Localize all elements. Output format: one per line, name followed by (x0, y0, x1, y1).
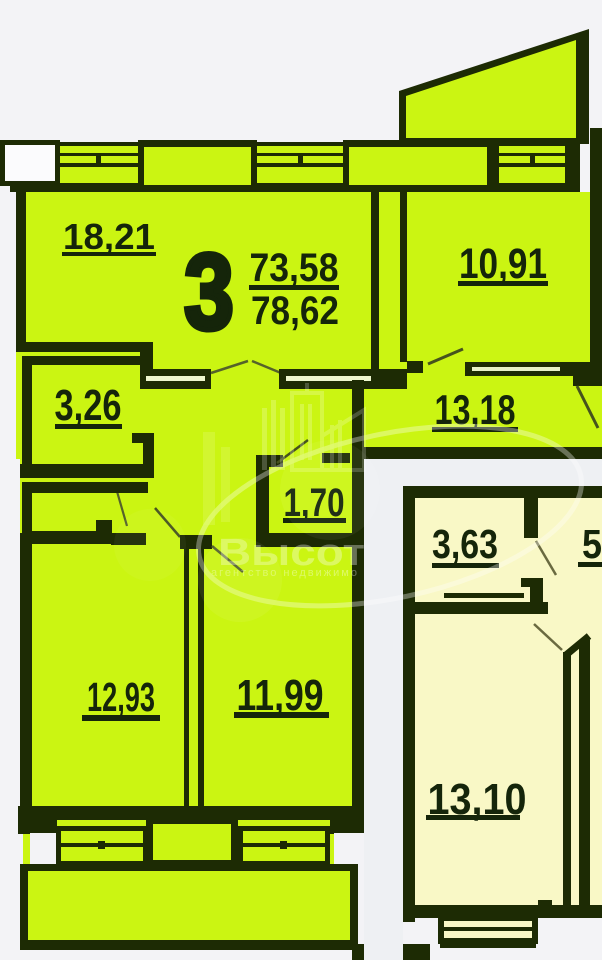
svg-text:3,63: 3,63 (432, 521, 498, 567)
svg-text:73,58: 73,58 (250, 246, 339, 290)
svg-text:3: 3 (184, 231, 234, 352)
svg-text:10,91: 10,91 (459, 240, 547, 288)
svg-text:18,21: 18,21 (63, 216, 155, 257)
svg-text:3,26: 3,26 (55, 381, 122, 430)
svg-text:78,62: 78,62 (251, 289, 339, 333)
svg-text:12,93: 12,93 (87, 674, 155, 720)
svg-text:агентство недвижимо: агентство недвижимо (211, 567, 359, 579)
svg-text:5,: 5, (582, 521, 602, 567)
